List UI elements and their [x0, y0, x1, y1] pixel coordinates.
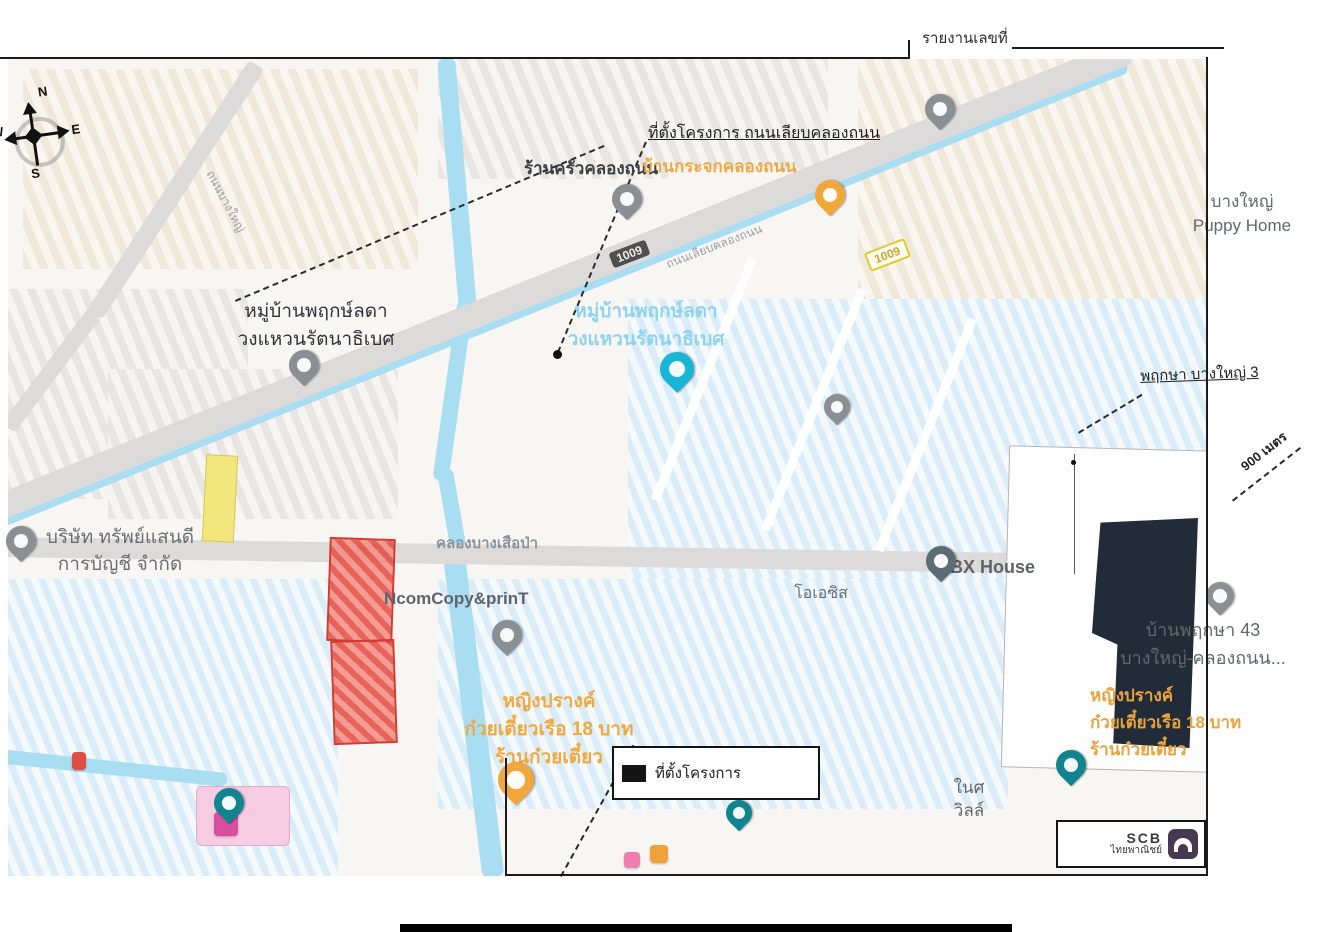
- form-bottom-left-rule: [505, 758, 507, 876]
- form-bottom-rule: [505, 874, 1208, 876]
- scb-logo-icon: [1168, 829, 1198, 859]
- shop-square-icon: [214, 812, 238, 836]
- form-right-rule: [1206, 57, 1208, 876]
- legend-box: ที่ตั้งโครงการ: [612, 746, 820, 800]
- form-top-rule: [0, 57, 908, 59]
- form-top-rule-jog: [908, 40, 910, 59]
- appraisal-map-page: รายงานเลขที่: [0, 0, 1318, 932]
- compass-n-label: N: [37, 83, 48, 99]
- report-number-blank-line: [1012, 47, 1224, 49]
- small-red-marker: [72, 752, 86, 770]
- distance-arrow-line: [1232, 447, 1301, 502]
- highlight-red-parcel-lower: [330, 639, 398, 745]
- compass-s-label: S: [30, 165, 41, 181]
- compass-e-label: E: [70, 121, 81, 137]
- highlight-red-parcel-upper: [326, 537, 396, 643]
- shop-square-icon: [624, 852, 640, 868]
- map-point-dot: [553, 350, 562, 359]
- note-distance-900m: 900 เมตร: [1238, 429, 1290, 475]
- compass-ring: [12, 114, 68, 170]
- highlight-pink-building: [196, 786, 290, 846]
- compass-north-arrow: [20, 94, 37, 115]
- shop-square-icon: [650, 845, 668, 863]
- scb-logo-box: SCB ไทยพาณิชย์: [1056, 820, 1206, 868]
- compass-rose: N E S W: [0, 78, 124, 189]
- site-plan-tick-line: [1074, 454, 1075, 574]
- map-background: [8, 59, 1206, 876]
- location-map: [8, 59, 1206, 876]
- scb-name: SCB: [1110, 831, 1162, 846]
- legend-label: ที่ตั้งโครงการ: [655, 761, 741, 785]
- scb-thai-name: ไทยพาณิชย์: [1110, 846, 1162, 857]
- next-section-bar: [400, 924, 1012, 932]
- report-number-label: รายงานเลขที่: [922, 26, 1008, 50]
- site-plan-tick-dot: [1071, 460, 1076, 465]
- highlight-yellow-parcel: [202, 454, 239, 543]
- scb-wordmark: SCB ไทยพาณิชย์: [1110, 831, 1162, 856]
- legend-site-square-icon: [622, 765, 646, 782]
